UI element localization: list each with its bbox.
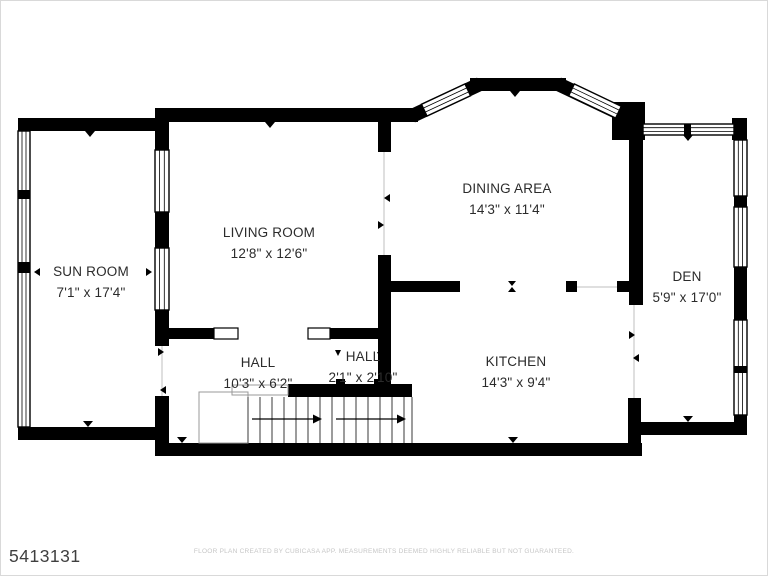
room-name: KITCHEN [482,351,551,372]
window-shared-upper [155,150,169,212]
room-label-living-room: LIVING ROOM 12'8" x 12'6" [223,222,315,264]
room-label-hall: HALL 10'3" x 6'2" [224,352,293,394]
door-hall-right [308,328,330,339]
room-dimensions: 2'1" x 2'10" [329,367,398,388]
room-name: LIVING ROOM [223,222,315,243]
room-dimensions: 10'3" x 6'2" [224,373,293,394]
window-den-top [643,124,734,135]
floor-plan-page: { "page": { "plan_number": "5413131", "f… [0,0,768,576]
room-label-kitchen: KITCHEN 14'3" x 9'4" [482,351,551,393]
stair-direction-arrows [252,415,406,424]
room-label-den: DEN 5'9" x 17'0" [653,266,722,308]
window-den-right-2 [734,207,747,267]
room-name: DEN [653,266,722,287]
room-dimensions: 14'3" x 9'4" [482,372,551,393]
room-dimensions: 5'9" x 17'0" [653,287,722,308]
window-bay-right [569,84,622,118]
window-den-right-3 [734,320,747,415]
room-label-hall-small: HALL 2'1" x 2'10" [329,346,398,388]
window-shared-lower [155,248,169,310]
room-dimensions: 7'1" x 17'4" [53,282,129,303]
staircase [199,392,412,443]
room-label-dining-area: DINING AREA 14'3" x 11'4" [462,178,551,220]
footer-disclaimer: FLOOR PLAN CREATED BY CUBICASA APP. MEAS… [0,548,768,555]
room-name: SUN ROOM [53,261,129,282]
window-den-right-1 [734,140,747,196]
room-name: DINING AREA [462,178,551,199]
room-dimensions: 14'3" x 11'4" [462,199,551,220]
room-dimensions: 12'8" x 12'6" [223,243,315,264]
door-hall-left [214,328,238,339]
room-name: HALL [329,346,398,367]
room-name: HALL [224,352,293,373]
room-label-sun-room: SUN ROOM 7'1" x 17'4" [53,261,129,303]
window-sun-left [18,131,30,427]
window-bay-left [422,84,471,116]
